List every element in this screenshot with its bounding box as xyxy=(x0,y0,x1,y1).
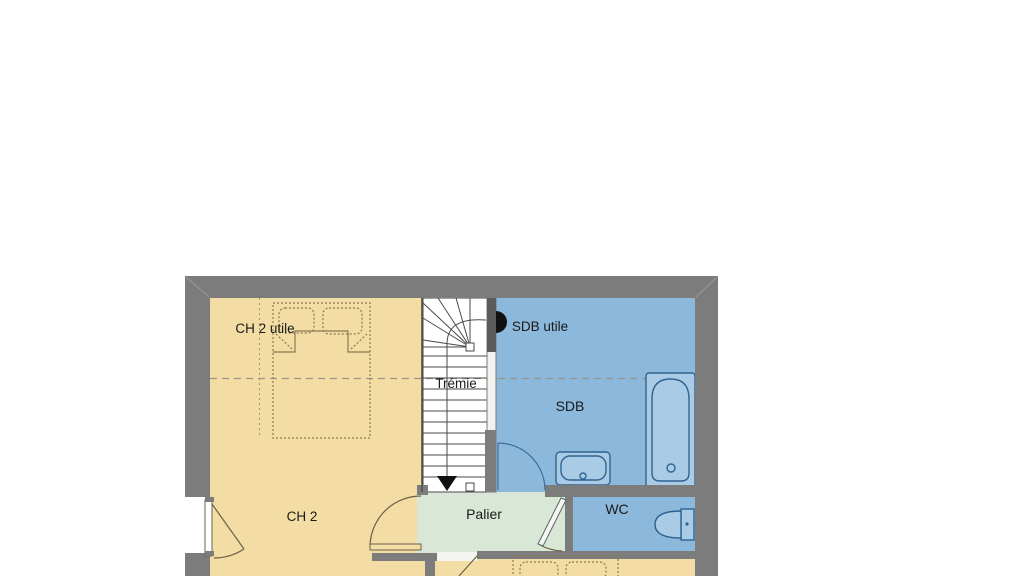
wall-bottom-2 xyxy=(477,551,695,559)
wall-left-upper xyxy=(185,276,210,497)
label-ch2: CH 2 xyxy=(287,509,318,524)
label-sdb: SDB xyxy=(556,398,585,414)
label-ch2-utile: CH 2 utile xyxy=(235,321,294,336)
label-palier: Palier xyxy=(466,506,502,522)
wall-bathroom-bottom xyxy=(545,485,695,497)
label-tremie: Trémie xyxy=(435,376,477,391)
wall-top xyxy=(185,276,718,298)
door-threshold xyxy=(437,552,477,561)
floor-plan-canvas: CH 2 utile Trémie SDB utile SDB CH 2 Pal… xyxy=(0,0,1024,576)
label-wc: WC xyxy=(605,501,628,517)
wall-landing-wc xyxy=(565,492,573,553)
wall-right xyxy=(695,276,718,576)
newel-post xyxy=(466,483,474,491)
wall-bottom-stub xyxy=(425,553,435,576)
sink-icon xyxy=(556,452,610,485)
newel-post xyxy=(466,343,474,351)
bathtub-icon xyxy=(646,373,695,490)
floor-plan-drawing: CH 2 utile Trémie SDB utile SDB CH 2 Pal… xyxy=(0,0,1024,576)
door-leaf xyxy=(370,544,421,550)
label-sdb-utile: SDB utile xyxy=(512,319,568,334)
